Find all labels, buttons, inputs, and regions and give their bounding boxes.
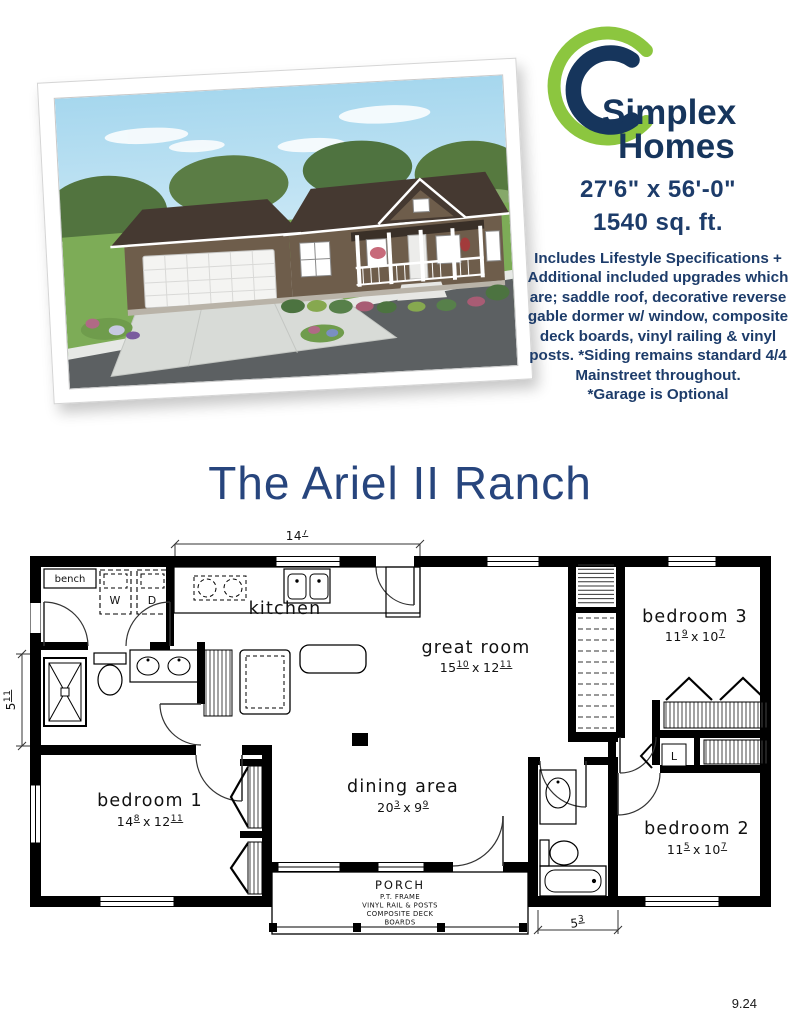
version-code: 9.24 xyxy=(732,996,757,1011)
bedroom1-bifold-upper xyxy=(231,767,248,827)
structural-post xyxy=(352,733,368,746)
bedroom2-closet-shelf xyxy=(704,740,768,764)
floor-plan: PORCH P.T. FRAME VINYL RAIL & POSTS COMP… xyxy=(0,530,800,1010)
label-washer: W xyxy=(110,594,121,607)
bedroom1-bifold-lower xyxy=(231,843,248,893)
pantry-shelf xyxy=(204,650,232,716)
label-bench: bench xyxy=(55,574,86,585)
window-great-room xyxy=(487,557,539,567)
porch-note-1: P.T. FRAME xyxy=(380,893,420,901)
door-front-entry xyxy=(453,816,503,866)
porch-title: PORCH xyxy=(375,878,425,892)
dim-kitchen-width: 147 xyxy=(286,530,309,543)
room-dims-dining: 203x99 xyxy=(377,800,429,815)
bedroom3-bifold-left xyxy=(666,678,712,700)
fridge-icon xyxy=(240,650,290,714)
kitchen-sink-icon xyxy=(284,569,330,603)
bedroom1-closet-shelf-lower xyxy=(248,842,262,894)
window-dining-left xyxy=(278,863,340,872)
room-dims-bedroom3: 119x107 xyxy=(665,629,725,644)
room-dims-bedroom2: 115x107 xyxy=(667,842,727,857)
bedroom3-bifold-right xyxy=(720,678,766,700)
garage-note: *Garage is Optional xyxy=(522,385,794,404)
room-label-dining: dining area xyxy=(347,777,459,797)
room-label-bedroom1: bedroom 1 xyxy=(97,791,203,811)
door-bedroom2 xyxy=(618,773,660,815)
front-door xyxy=(408,235,428,280)
room-dims-bedroom1: 148x1211 xyxy=(117,814,183,829)
simplex-homes-logo: Simplex Homes xyxy=(526,24,790,174)
bedroom1-closet-shelf-upper xyxy=(248,766,262,828)
room-label-bedroom3: bedroom 3 xyxy=(642,607,748,627)
porch-note-2: VINYL RAIL & POSTS xyxy=(362,902,438,910)
room-label-bedroom2: bedroom 2 xyxy=(644,819,750,839)
door-master-bath xyxy=(160,704,201,745)
window-bedroom1-side xyxy=(31,785,41,843)
window-bedroom1-front xyxy=(100,897,174,907)
house-rendering-image xyxy=(54,74,519,389)
porch-note-4: BOARDS xyxy=(384,919,415,927)
porch-note-3: COMPOSITE DECK xyxy=(367,910,434,918)
dim-bath2-width: 53 xyxy=(570,914,586,930)
model-dimensions: 27'6" x 56'-0" xyxy=(522,176,794,204)
stairs xyxy=(578,565,614,728)
window-dining-right xyxy=(378,863,424,872)
double-vanity-icon xyxy=(130,650,198,682)
bathtub-icon xyxy=(540,866,606,896)
porch: PORCH P.T. FRAME VINYL RAIL & POSTS COMP… xyxy=(269,872,528,934)
dryer-box xyxy=(137,570,168,614)
brochure-page: Simplex Homes 27'6" x 56'-0" 1540 sq. ft… xyxy=(0,0,800,1035)
page-title: The Ariel II Ranch xyxy=(0,456,800,510)
label-linen: L xyxy=(671,750,678,763)
brand-name-line2: Homes xyxy=(618,127,735,166)
room-dims-great-room: 1510x1211 xyxy=(440,660,513,675)
dormer-window xyxy=(413,199,430,213)
dim-bath-depth: 511 xyxy=(3,690,18,711)
label-dryer: D xyxy=(148,594,156,607)
window-bedroom3 xyxy=(668,557,716,567)
washer-box xyxy=(100,570,131,614)
window-kitchen xyxy=(276,557,340,567)
shower-icon xyxy=(44,658,86,726)
door-bedroom1 xyxy=(196,755,242,801)
model-area: 1540 sq. ft. xyxy=(522,209,794,237)
range-icon xyxy=(194,576,246,600)
door-rear-entry xyxy=(376,567,414,605)
included-upgrades-text: Includes Lifestyle Specifications + Addi… xyxy=(522,249,794,385)
master-bath-fixtures xyxy=(44,650,198,726)
room-label-great-room: great room xyxy=(421,638,530,658)
end-window xyxy=(485,231,500,261)
doors-mudroom xyxy=(44,602,170,646)
bedroom3-closet-shelf xyxy=(664,702,768,728)
window-bedroom2-front xyxy=(645,897,719,907)
kitchen-island xyxy=(300,645,366,673)
toilet-icon xyxy=(94,653,126,695)
house-photo-card xyxy=(37,58,533,405)
room-label-kitchen: kitchen xyxy=(249,599,322,619)
bath2-toilet-icon xyxy=(540,840,578,866)
spec-column: Simplex Homes 27'6" x 56'-0" 1540 sq. ft… xyxy=(522,24,794,405)
